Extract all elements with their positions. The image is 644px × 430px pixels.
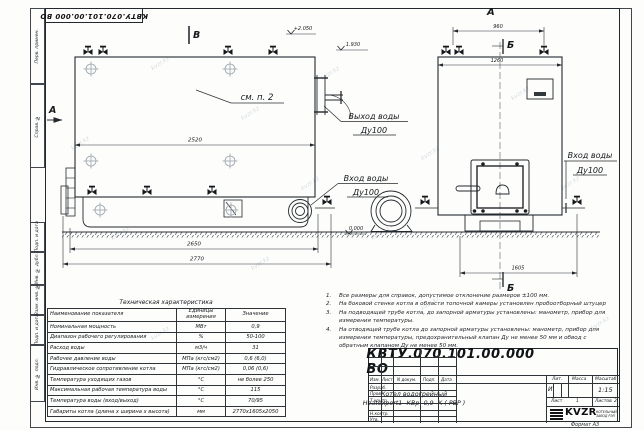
drawing-sheet: kvzr.kz kvzr.kz kvzr.kz kvzr.kz kvzr.kz … — [0, 0, 644, 430]
spec-row: Гидравлическое сопротивление котлаМПа (к… — [48, 364, 286, 375]
spec-cell: °С — [177, 374, 226, 385]
spec-cell: 0,6 (6,0) — [226, 353, 286, 364]
spec-table: Наименование показателя Единицы измерени… — [47, 308, 286, 417]
spec-cell: 50-100 — [226, 332, 286, 343]
spec-row: Габариты котла (длина х ширина х высота)… — [48, 406, 286, 417]
spec-cell: 0,06 (0,6) — [226, 364, 286, 375]
inlet-dn-text: Ду100 — [576, 166, 603, 175]
sheet-label: Лист — [551, 399, 562, 404]
col-podp: Подп. — [423, 377, 436, 382]
spec-cell: Рабочее давление воды — [48, 353, 177, 364]
title-block: КВТУ.070.101.00.000 ВО Котел водогрейный… — [368, 348, 618, 422]
row-utv: Утв. — [370, 417, 379, 422]
note-text: На подводящей трубе котла, до запорной а… — [339, 309, 612, 326]
view-a-label: А — [486, 7, 495, 18]
door-lock-icon — [496, 185, 509, 194]
spec-cell: Расход воды — [48, 343, 177, 354]
section-marker-b-top: Б — [507, 40, 514, 51]
spec-row: Расход водым3/ч31 — [48, 343, 286, 354]
note-number: 3. — [326, 309, 339, 326]
row-prov: Пров. — [370, 391, 382, 396]
spec-cell: °С — [177, 385, 226, 396]
note-text: Все размеры для справок, допустимое откл… — [339, 292, 612, 300]
spec-cell: мм — [177, 406, 226, 417]
spec-cell: МПа (кгс/см2) — [177, 353, 226, 364]
valves-front-view — [421, 47, 582, 205]
row-tkontr: Т.контр. — [370, 398, 388, 403]
note-item: 2.На боковой стенке котла в области топо… — [326, 300, 612, 308]
spec-header-row: Наименование показателя Единицы измерени… — [48, 309, 286, 322]
spec-cell: Габариты котла (длина х ширина х высота) — [48, 406, 177, 417]
sheets-value: 2 — [614, 399, 617, 404]
inlet-text: Вход воды — [568, 151, 613, 160]
row-nkontr: Н.контр. — [370, 411, 389, 416]
kvzr-logo-subtext: КОТЕЛЬНЫЙЗАВОД РЭП — [596, 410, 620, 418]
spec-header-units: Единицы измерения — [177, 309, 226, 322]
furnace-door — [456, 160, 529, 214]
spec-cell: % — [177, 332, 226, 343]
outlet-text: Выход воды — [349, 112, 400, 121]
spec-header-name: Наименование показателя — [48, 309, 177, 322]
col-izm: Изм. — [370, 377, 380, 382]
sheets-label: Листов — [595, 399, 612, 404]
boiler-front-view — [415, 42, 585, 292]
col-list: Лист — [382, 377, 393, 382]
spec-row: Номинальная мощностьМВт0,9 — [48, 322, 286, 333]
row-razrab: Разраб. — [370, 385, 386, 390]
elevation-1930: 1.930 — [346, 42, 360, 48]
scale-label: Масштаб — [595, 377, 616, 382]
spec-cell: 115 — [226, 385, 286, 396]
see-note-2-label: см. п. 2 — [241, 93, 274, 103]
col-doc: N докум. — [397, 377, 416, 382]
spec-row: Диапазон рабочего регулирования%50-100 — [48, 332, 286, 343]
spec-cell: м3/ч — [177, 343, 226, 354]
spec-cell: 0,9 — [226, 322, 286, 333]
spec-header-value: Значение — [226, 309, 286, 322]
outlet-dn-text: Ду100 — [360, 126, 387, 135]
spec-cell: Максимальная рабочая температура воды — [48, 385, 177, 396]
kvzr-logo-text: KVZR — [565, 407, 597, 418]
note-number: 4. — [326, 326, 339, 351]
format-note: Формат А3 — [545, 422, 625, 428]
spec-row: Температура воды (вход/выход)°С70/95 — [48, 396, 286, 407]
boiler-side-view — [61, 57, 351, 227]
spec-cell: Номинальная мощность — [48, 322, 177, 333]
section-marker-a: А — [48, 105, 56, 116]
spec-cell: 31 — [226, 343, 286, 354]
note-text: На боковой стенке котла в области топочн… — [339, 300, 612, 308]
note-item: 3.На подводящей трубе котла, до запорной… — [326, 309, 612, 326]
spec-cell: Температура уходящих газов — [48, 374, 177, 385]
kvzr-logo-mark — [550, 408, 563, 420]
dim-1605-label: 1605 — [512, 266, 525, 272]
spec-cell: °С — [177, 396, 226, 407]
dim-1260-label: 1260 — [491, 58, 504, 64]
inlet-text: Вход воды — [344, 174, 389, 183]
elevation-plus-2050: +2.050 — [294, 26, 313, 32]
spec-table-title: Техническая характеристика — [47, 299, 285, 306]
water-outlet-label: Выход воды Ду100 — [324, 106, 408, 135]
dim-960-label: 960 — [493, 24, 503, 30]
lit-value: И — [548, 386, 553, 393]
section-marker-v: В — [193, 30, 200, 41]
dimensions-front-view — [438, 27, 577, 287]
spec-cell: Гидравлическое сопротивление котла — [48, 364, 177, 375]
outlet-pipe — [314, 75, 351, 119]
valves-side-view — [84, 47, 332, 205]
spec-row: Рабочее давление водыМПа (кгс/см2)0,6 (6… — [48, 353, 286, 364]
spec-row: Максимальная рабочая температура воды°С1… — [48, 385, 286, 396]
water-inlet-label-right: Вход воды Ду100 — [564, 151, 617, 199]
spec-cell: 70/95 — [226, 396, 286, 407]
inlet-dn-text: Ду100 — [352, 188, 379, 197]
note-item: 1.Все размеры для справок, допустимое от… — [326, 292, 612, 300]
lit-label: Лит. — [552, 377, 562, 382]
spec-cell: 2770х1605х2050 — [226, 406, 286, 417]
spec-table-block: Техническая характеристика Наименование … — [47, 299, 285, 417]
elevation-0000: 0.000 — [349, 226, 363, 232]
spec-cell: не более 250 — [226, 374, 286, 385]
spec-cell: Диапазон рабочего регулирования — [48, 332, 177, 343]
dim-2650-label: 2650 — [187, 242, 201, 248]
dim-2520-label: 2520 — [188, 138, 202, 144]
notes-block: 1.Все размеры для справок, допустимое от… — [326, 292, 612, 351]
sheet-value: 1 — [576, 399, 579, 404]
note-number: 2. — [326, 300, 339, 308]
spec-row: Температура уходящих газов°Сне более 250 — [48, 374, 286, 385]
spec-cell: МВт — [177, 322, 226, 333]
mass-label: Масса — [572, 377, 586, 382]
kvzr-logo-sub2: ЗАВОД РЭП — [596, 414, 615, 418]
dim-2770-label: 2770 — [190, 257, 204, 263]
note-number: 1. — [326, 292, 339, 300]
col-data: Дата — [441, 377, 452, 382]
spec-cell: МПа (кгс/см2) — [177, 364, 226, 375]
scale-value: 1:15 — [598, 386, 613, 394]
spec-cell: Температура воды (вход/выход) — [48, 396, 177, 407]
inlet-flange — [289, 200, 312, 223]
